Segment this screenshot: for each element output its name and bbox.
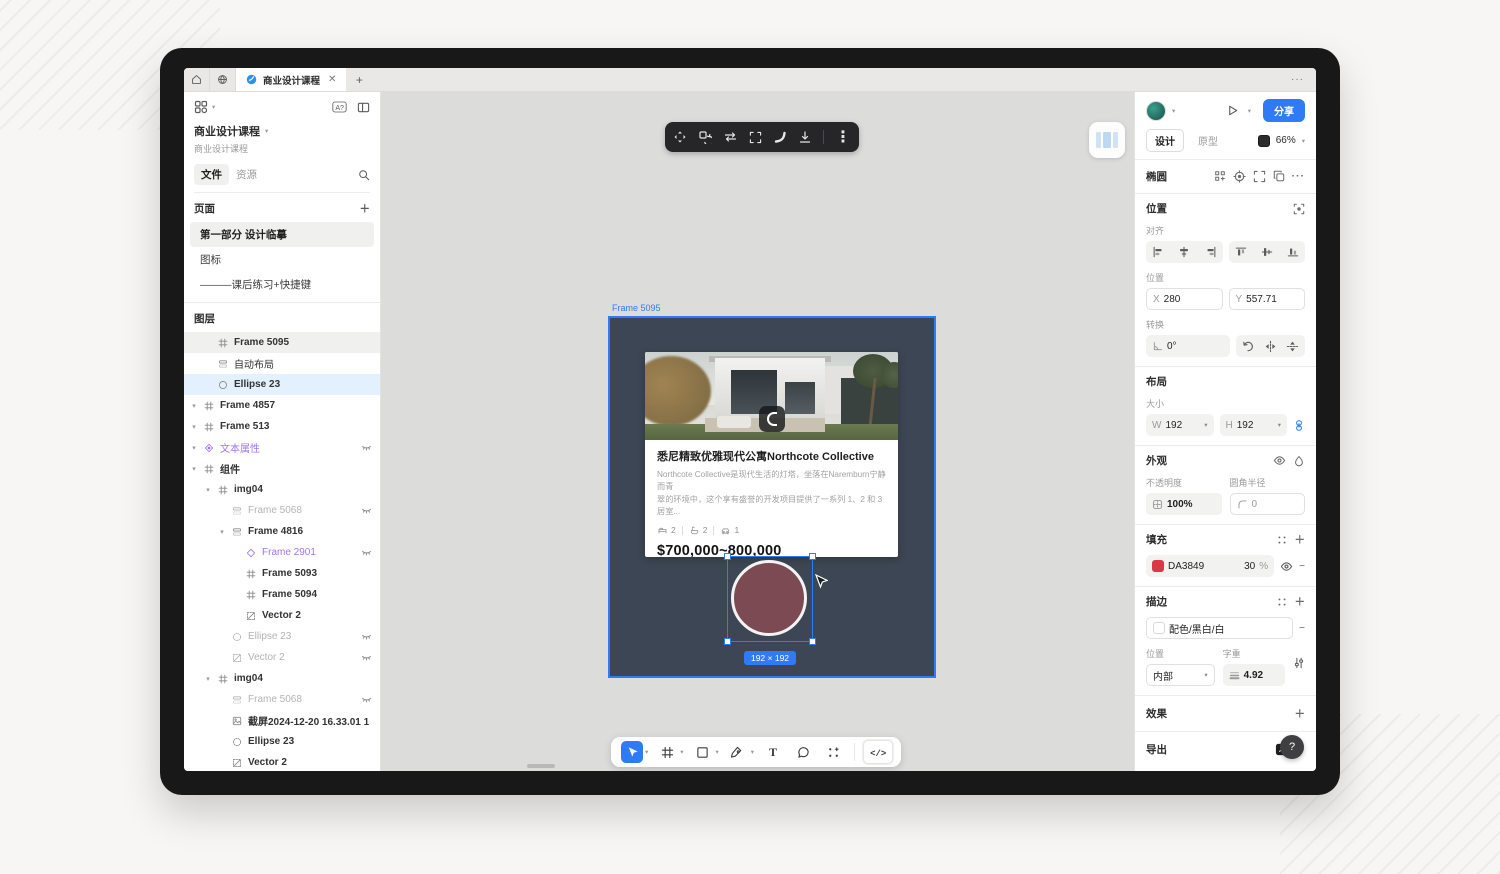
toolbar-divider: [823, 130, 824, 144]
layout-header: 布局: [1146, 374, 1167, 389]
document-tab[interactable]: 商业设计课程 ✕: [236, 68, 346, 91]
layer-name: Vector 2: [248, 652, 285, 663]
layer-row[interactable]: ▾组件: [184, 458, 380, 479]
amenity-divider: [713, 526, 714, 535]
resize-handle[interactable]: [809, 638, 816, 645]
add-page-button[interactable]: ＋: [360, 201, 371, 216]
help-button[interactable]: ?: [1280, 735, 1304, 759]
resize-handle[interactable]: [809, 553, 816, 560]
effects-header: 效果: [1146, 706, 1167, 721]
home-icon: [191, 74, 202, 85]
page-item[interactable]: ———课后练习+快捷键: [190, 272, 374, 297]
layer-name: Vector 2: [248, 757, 287, 768]
tab-assets[interactable]: 资源: [229, 164, 264, 185]
visibility-eye-icon[interactable]: [1273, 454, 1286, 467]
layer-name: Frame 4816: [248, 526, 303, 537]
file-favicon-icon: [246, 74, 257, 85]
layer-expand-caret[interactable]: ▾: [204, 675, 212, 683]
new-tab-button[interactable]: +: [346, 68, 372, 91]
layer-row[interactable]: Ellipse 23: [184, 374, 380, 395]
align-center-h-icon[interactable]: [1174, 243, 1194, 261]
bed-icon: [657, 526, 668, 535]
code-mode-toggle[interactable]: </>: [862, 739, 894, 765]
layer-name: Ellipse 23: [248, 631, 291, 642]
keyboard-widget-icon: [1096, 132, 1118, 148]
curve-icon[interactable]: [773, 130, 787, 144]
layers-header: 图层: [194, 311, 215, 326]
tab-files[interactable]: 文件: [194, 164, 229, 185]
align-label: 对齐: [1146, 224, 1305, 237]
layer-row[interactable]: Ellipse 23: [184, 731, 380, 752]
radius-label: 圆角半径: [1230, 476, 1306, 489]
layer-expand-caret[interactable]: ▾: [190, 444, 198, 452]
position-header: 位置: [1146, 201, 1167, 216]
tab-title: 商业设计课程: [263, 73, 320, 87]
comment-tool-icon: [792, 741, 814, 763]
rotation-input[interactable]: 0°: [1146, 335, 1230, 357]
autolayout-layer-icon: [231, 506, 243, 516]
listing-description-line1: Northcote Collective是现代生活的灯塔，坐落在Narembur…: [657, 469, 886, 494]
flip-v-icon[interactable]: [1283, 337, 1303, 355]
right-inspector: ▾ ▾ 分享 设计 原型 66% ▾ 椭圆: [1134, 92, 1316, 771]
add-stroke-button[interactable]: ＋: [1295, 594, 1306, 609]
chevron-down-icon[interactable]: ▾: [680, 748, 683, 756]
left-sidebar: ▾ A? 商业设计课程 ▾ 商业设计课程 文件 资源 页面: [184, 92, 381, 771]
mouse-cursor-icon: [815, 574, 828, 590]
chevron-down-icon: ▾: [1204, 421, 1207, 429]
listing-price: $700,000~800,000: [657, 543, 886, 557]
main-menu-button[interactable]: [194, 100, 208, 114]
more-vertical-icon[interactable]: ⋮: [835, 127, 851, 147]
radius-input[interactable]: 0: [1230, 493, 1306, 515]
vector-layer-icon: [231, 653, 243, 663]
layer-row[interactable]: Frame 5094: [184, 584, 380, 605]
ellipse-dashed-layer-icon: [231, 632, 243, 642]
page-item[interactable]: 第一部分 设计临摹: [190, 222, 374, 247]
stroke-position-label: 位置: [1146, 647, 1215, 660]
remove-stroke-button[interactable]: −: [1299, 623, 1305, 634]
amenity-item: 2: [689, 525, 708, 535]
fill-visibility-eye-icon[interactable]: [1280, 560, 1293, 573]
align-bottom-icon[interactable]: [1283, 243, 1303, 261]
listing-description-line2: 翠的环境中，这个享有盛誉的开发项目提供了一系列 1、2 和 3 居室...: [657, 494, 886, 519]
frame-layer-icon: [217, 485, 229, 495]
layer-row[interactable]: Frame 5068: [184, 500, 380, 521]
export-header: 导出: [1146, 742, 1167, 757]
vector-layer-icon: [245, 611, 257, 621]
pen-tool-tool[interactable]: ▾: [724, 741, 757, 763]
app-window: 商业设计课程 ✕ + ··· ▾ A? 商业设计课程 ▾ 商业设计课程: [184, 68, 1316, 771]
frame-layer-icon: [203, 401, 215, 411]
stroke-position-select[interactable]: 内部 ▾: [1146, 664, 1215, 686]
angle-icon: [1152, 341, 1163, 352]
autolayout-layer-icon: [231, 527, 243, 537]
layer-name: Frame 5068: [248, 694, 302, 705]
component-layer-icon: [203, 443, 215, 453]
hidden-eye-icon[interactable]: [361, 652, 372, 663]
y-input[interactable]: Y 557.71: [1229, 288, 1306, 310]
page-item[interactable]: 图标: [190, 247, 374, 272]
layer-row[interactable]: Frame 5068: [184, 689, 380, 710]
code-icon: </>: [864, 741, 892, 763]
chevron-down-icon: ▾: [1204, 671, 1207, 679]
resources-tool-icon: [822, 741, 844, 763]
layer-row[interactable]: 自动布局: [184, 353, 380, 374]
isolate-icon[interactable]: [1293, 203, 1305, 215]
rotate-ccw-icon[interactable]: [1238, 337, 1258, 355]
align-left-icon[interactable]: [1148, 243, 1168, 261]
layer-name: Frame 513: [220, 421, 269, 432]
layer-name: Ellipse 23: [234, 379, 280, 390]
layer-expand-caret[interactable]: ▾: [190, 465, 198, 473]
move-icon[interactable]: [673, 130, 687, 144]
align-button-group: [1146, 241, 1223, 263]
instance-icon[interactable]: [1214, 170, 1226, 183]
blend-droplet-icon[interactable]: [1293, 455, 1305, 467]
appearance-header: 外观: [1146, 453, 1167, 468]
frame-layer-icon: [203, 464, 215, 474]
layer-name: 自动布局: [234, 356, 274, 371]
align-right-icon[interactable]: [1201, 243, 1221, 261]
stroke-weight-label: 字重: [1223, 647, 1285, 660]
toggle-panel-button[interactable]: [357, 101, 370, 114]
hidden-eye-icon[interactable]: [361, 505, 372, 516]
stroke-color-swatch[interactable]: [1153, 622, 1165, 634]
opacity-label: 不透明度: [1146, 476, 1222, 489]
frame-label[interactable]: Frame 5095: [612, 303, 661, 313]
diamond-layer-icon: [245, 548, 257, 558]
layer-name: img04: [234, 673, 263, 684]
autolayout-layer-icon: [231, 695, 243, 705]
frame-layer-icon: [217, 674, 229, 684]
image-layer-icon: [231, 716, 243, 726]
layer-name: Frame 5094: [262, 589, 317, 600]
property-card[interactable]: 悉尼精致优雅现代公寓Northcote Collective Northcote…: [645, 352, 898, 557]
layer-row[interactable]: 截屏2024-12-20 16.33.01 1: [184, 710, 380, 731]
copy-icon[interactable]: [1273, 170, 1285, 183]
swap-arrows-icon[interactable]: [723, 130, 738, 144]
layer-row[interactable]: ▾Frame 513: [184, 416, 380, 437]
size-badge: 192 × 192: [744, 651, 796, 665]
frame-layer-icon: [245, 569, 257, 579]
frame-layer-icon: [217, 338, 229, 348]
layer-row[interactable]: ▾img04: [184, 479, 380, 500]
position-label: 位置: [1146, 271, 1305, 284]
hidden-eye-icon[interactable]: [361, 631, 372, 642]
window-more-button[interactable]: ···: [1279, 68, 1316, 91]
layer-expand-caret[interactable]: ▾: [218, 528, 226, 536]
amenity-divider: [682, 526, 683, 535]
layer-row[interactable]: ▾Frame 4857: [184, 395, 380, 416]
vector-layer-icon: [231, 758, 243, 768]
layer-name: Frame 5095: [234, 337, 289, 348]
frame-layer-icon: [245, 590, 257, 600]
align-center-v-icon[interactable]: [1257, 243, 1277, 261]
layer-row[interactable]: ▾img04: [184, 668, 380, 689]
frame-tool-icon: [656, 741, 678, 763]
styles-grid-icon[interactable]: [1276, 596, 1288, 608]
fill-color-swatch[interactable]: [1152, 560, 1164, 572]
layer-name: Frame 4857: [220, 400, 275, 411]
selection-type-title: 椭圆: [1146, 169, 1167, 184]
size-label: 大小: [1146, 397, 1305, 410]
stroke-weight-icon: [1229, 670, 1240, 681]
target-icon[interactable]: [1233, 170, 1246, 183]
layer-row[interactable]: Vector 2: [184, 647, 380, 668]
text-tool-tool[interactable]: T: [759, 741, 787, 763]
car-icon: [720, 526, 731, 535]
layer-row[interactable]: ▾文本属性: [184, 437, 380, 458]
fill-row[interactable]: DA3849 30 %: [1146, 555, 1274, 577]
pages-header: 页面: [194, 201, 215, 216]
chevron-down-icon[interactable]: ▾: [751, 748, 754, 756]
listing-title: 悉尼精致优雅现代公寓Northcote Collective: [657, 448, 886, 464]
add-effect-button[interactable]: ＋: [1295, 706, 1306, 721]
layer-row[interactable]: Frame 5095: [184, 332, 380, 353]
stroke-weight-input[interactable]: 4.92: [1223, 664, 1285, 686]
bath-icon: [689, 526, 700, 535]
more-dots-icon[interactable]: ···: [1292, 170, 1306, 183]
layer-row[interactable]: Frame 2901: [184, 542, 380, 563]
chevron-down-icon: ▾: [212, 103, 215, 111]
canvas-color-chip[interactable]: [1258, 135, 1270, 147]
hidden-eye-icon[interactable]: [361, 694, 372, 705]
layer-name: Ellipse 23: [248, 736, 294, 747]
chevron-down-icon[interactable]: ▾: [1248, 107, 1251, 115]
layer-name: Vector 2: [262, 610, 301, 621]
pages-list: 第一部分 设计临摹图标———课后练习+快捷键: [184, 222, 380, 297]
layer-name: 组件: [220, 461, 240, 476]
doc-subtitle: 商业设计课程: [194, 142, 370, 155]
device-bezel: 商业设计课程 ✕ + ··· ▾ A? 商业设计课程 ▾ 商业设计课程: [160, 48, 1340, 795]
frame-5095[interactable]: 悉尼精致优雅现代公寓Northcote Collective Northcote…: [610, 318, 934, 676]
x-input[interactable]: X 280: [1146, 288, 1223, 310]
widget-panel-button[interactable]: [1089, 122, 1125, 158]
layer-row[interactable]: Vector 2: [184, 752, 380, 771]
frame-brackets-icon[interactable]: [1253, 170, 1266, 183]
layer-row[interactable]: ▾Frame 4816: [184, 521, 380, 542]
tab-prototype[interactable]: 原型: [1190, 130, 1226, 151]
amenity-count: 2: [703, 525, 708, 535]
amenities-row: 221: [657, 525, 886, 535]
zoom-level[interactable]: 66%: [1276, 135, 1296, 146]
frame-brackets-icon[interactable]: [749, 131, 762, 144]
layer-expand-caret[interactable]: ▾: [190, 402, 198, 410]
fill-header: 填充: [1146, 532, 1167, 547]
amenity-item: 1: [720, 525, 739, 535]
layer-name: Frame 5068: [248, 505, 302, 516]
amenity-item: 2: [657, 525, 676, 535]
resources-tool-tool[interactable]: [819, 741, 847, 763]
remove-fill-button[interactable]: −: [1299, 561, 1305, 572]
export-download-icon[interactable]: [798, 130, 812, 144]
align-button-group: [1229, 241, 1306, 263]
cursor-icon: [621, 741, 643, 763]
chevron-down-icon[interactable]: ▾: [716, 748, 719, 756]
stroke-settings-icon[interactable]: [1293, 657, 1305, 669]
community-button[interactable]: [210, 68, 236, 91]
hidden-eye-icon[interactable]: [361, 442, 372, 453]
pen-tool-icon: [727, 741, 749, 763]
home-button[interactable]: [184, 68, 210, 91]
stroke-style-row[interactable]: 配色/黑白/白: [1146, 617, 1293, 639]
hidden-eye-icon[interactable]: [361, 547, 372, 558]
resize-handle[interactable]: [724, 553, 731, 560]
opacity-icon: [1152, 499, 1163, 510]
height-input[interactable]: H 192 ▾: [1220, 414, 1288, 436]
svg-text:A?: A?: [335, 104, 344, 112]
chevron-down-icon[interactable]: ▾: [645, 748, 648, 756]
present-play-button[interactable]: [1226, 104, 1239, 117]
width-input[interactable]: W 192 ▾: [1146, 414, 1214, 436]
avatar[interactable]: [1146, 101, 1166, 121]
opacity-input[interactable]: 100%: [1146, 493, 1222, 515]
layer-row[interactable]: Frame 5093: [184, 563, 380, 584]
align-top-icon[interactable]: [1231, 243, 1251, 261]
amenity-count: 1: [734, 525, 739, 535]
comment-tool-tool[interactable]: [789, 741, 817, 763]
chevron-down-icon[interactable]: ▾: [265, 127, 268, 135]
frame-layer-icon: [203, 422, 215, 432]
cursor-tool[interactable]: ▾: [618, 741, 651, 763]
selection-toolbar: ⋮: [665, 122, 859, 152]
tab-design[interactable]: 设计: [1146, 129, 1184, 152]
photo-watermark-icon: [759, 406, 785, 432]
tools-toolbar: ▾▾▾▾T</>: [611, 737, 901, 767]
close-tab-icon[interactable]: ✕: [326, 74, 338, 85]
styles-grid-icon[interactable]: [1276, 534, 1288, 546]
shape-tool-icon: [692, 741, 714, 763]
autolayout-layer-icon: [217, 359, 229, 369]
layer-name: 文本属性: [220, 440, 260, 455]
layer-row[interactable]: Vector 2: [184, 605, 380, 626]
toolbar-divider: [854, 743, 855, 761]
transform-label: 转换: [1146, 318, 1305, 331]
rotate-copy-icon[interactable]: [698, 130, 712, 144]
ellipse-23-shape[interactable]: [731, 560, 807, 636]
ellipse-layer-icon: [217, 380, 229, 390]
layers-list: Frame 5095自动布局Ellipse 23▾Frame 4857▾Fram…: [184, 332, 380, 771]
browser-tabbar: 商业设计课程 ✕ + ···: [184, 68, 1316, 92]
resize-handle[interactable]: [724, 638, 731, 645]
text-tool-icon: T: [762, 741, 784, 763]
layer-name: Frame 2901: [262, 547, 316, 558]
corner-radius-icon: [1237, 499, 1248, 510]
stroke-header: 描边: [1146, 594, 1167, 609]
doc-title: 商业设计课程: [194, 123, 260, 139]
chevron-down-icon[interactable]: ▾: [1302, 137, 1305, 145]
layer-expand-caret[interactable]: ▾: [204, 486, 212, 494]
amenity-count: 2: [671, 525, 676, 535]
layer-expand-caret[interactable]: ▾: [190, 423, 198, 431]
selection-box[interactable]: [727, 556, 813, 642]
shape-tool-tool[interactable]: ▾: [689, 741, 722, 763]
constrain-proportions-icon[interactable]: [1293, 419, 1305, 432]
chevron-down-icon: ▾: [1278, 421, 1281, 429]
share-button[interactable]: 分享: [1263, 99, 1305, 122]
frame-tool-tool[interactable]: ▾: [653, 741, 686, 763]
layer-name: 截屏2024-12-20 16.33.01 1: [248, 713, 369, 728]
layer-name: Frame 5093: [262, 568, 317, 579]
canvas[interactable]: Frame 5095 悉尼精致优雅现代公寓Northcote Collectiv…: [381, 92, 1134, 771]
layer-name: img04: [234, 484, 263, 495]
property-photo: [645, 352, 898, 440]
add-fill-button[interactable]: ＋: [1295, 532, 1306, 547]
flip-h-icon[interactable]: [1260, 337, 1280, 355]
search-icon[interactable]: [358, 169, 370, 181]
chevron-down-icon[interactable]: ▾: [1172, 107, 1175, 115]
ai-button[interactable]: A?: [332, 101, 347, 113]
globe-icon: [217, 74, 228, 85]
horizontal-scrollbar[interactable]: [527, 764, 555, 768]
layer-row[interactable]: Ellipse 23: [184, 626, 380, 647]
ellipse-dashed-layer-icon: [231, 737, 243, 747]
